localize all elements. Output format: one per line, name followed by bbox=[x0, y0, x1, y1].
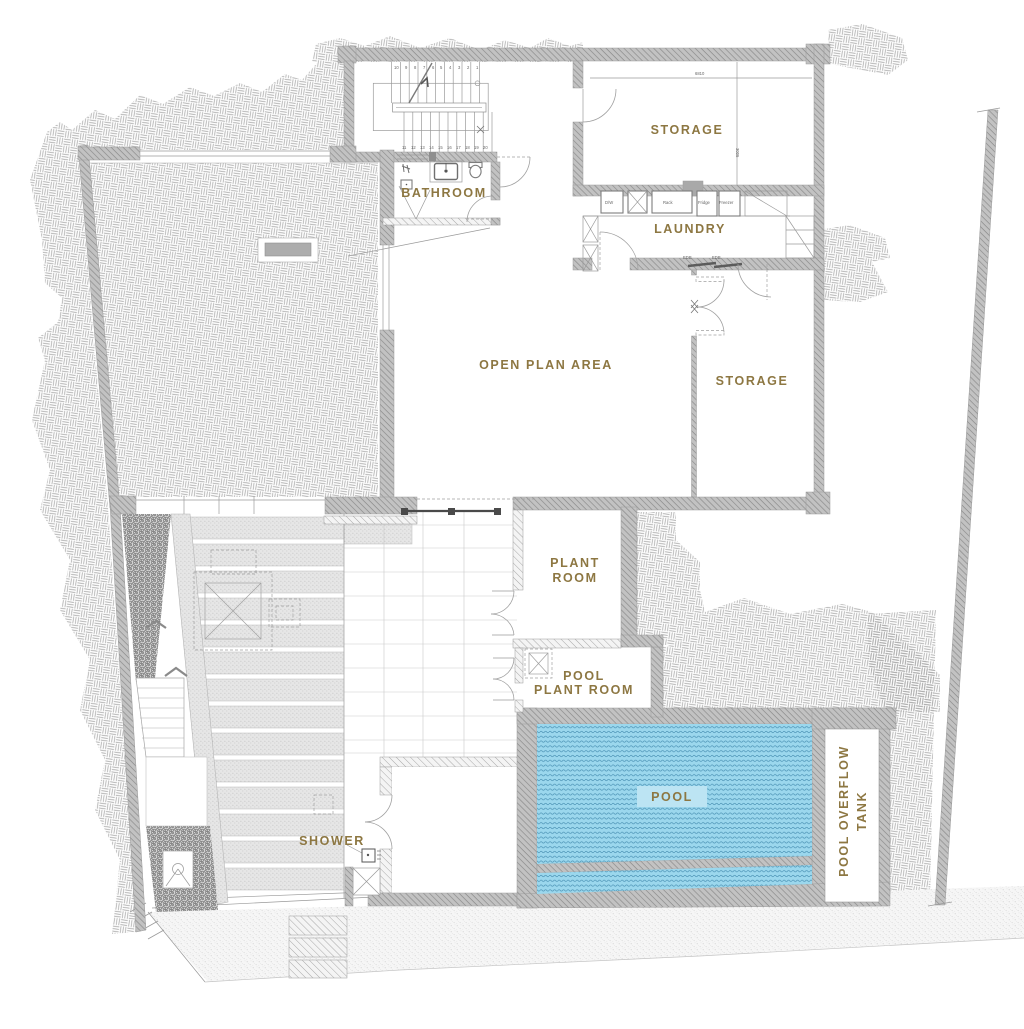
svg-text:15: 15 bbox=[438, 145, 443, 150]
svg-text:Freezer: Freezer bbox=[719, 200, 734, 205]
svg-text:PLANT: PLANT bbox=[550, 556, 600, 570]
svg-text:12: 12 bbox=[411, 145, 416, 150]
svg-text:Rack: Rack bbox=[663, 200, 673, 205]
svg-text:Fridge: Fridge bbox=[698, 200, 711, 205]
svg-text:D/W: D/W bbox=[605, 200, 613, 205]
svg-text:POOL: POOL bbox=[651, 790, 693, 804]
svg-text:19: 19 bbox=[474, 145, 479, 150]
svg-text:POOL OVERFLOW: POOL OVERFLOW bbox=[837, 745, 851, 877]
svg-text:14: 14 bbox=[429, 145, 434, 150]
svg-text:3005: 3005 bbox=[735, 148, 740, 158]
svg-text:SHOWER: SHOWER bbox=[299, 834, 365, 848]
svg-text:18: 18 bbox=[465, 145, 470, 150]
svg-text:POOL: POOL bbox=[563, 669, 605, 683]
svg-text:16: 16 bbox=[447, 145, 452, 150]
svg-text:STORAGE: STORAGE bbox=[716, 374, 789, 388]
svg-text:STORAGE: STORAGE bbox=[651, 123, 724, 137]
svg-text:10: 10 bbox=[394, 65, 399, 70]
svg-text:EDB: EDB bbox=[712, 255, 721, 260]
svg-text:11: 11 bbox=[402, 145, 407, 150]
svg-text:ROOM: ROOM bbox=[552, 571, 597, 585]
svg-text:OPEN PLAN AREA: OPEN PLAN AREA bbox=[479, 358, 613, 372]
svg-text:EDB: EDB bbox=[683, 255, 692, 260]
svg-text:13: 13 bbox=[420, 145, 425, 150]
svg-text:17: 17 bbox=[456, 145, 461, 150]
svg-text:TANK: TANK bbox=[855, 791, 869, 831]
svg-text:BATHROOM: BATHROOM bbox=[401, 186, 486, 200]
svg-text:20: 20 bbox=[483, 145, 488, 150]
svg-text:LAUNDRY: LAUNDRY bbox=[654, 222, 726, 236]
svg-text:6810: 6810 bbox=[695, 71, 705, 76]
svg-text:PLANT ROOM: PLANT ROOM bbox=[534, 683, 634, 697]
